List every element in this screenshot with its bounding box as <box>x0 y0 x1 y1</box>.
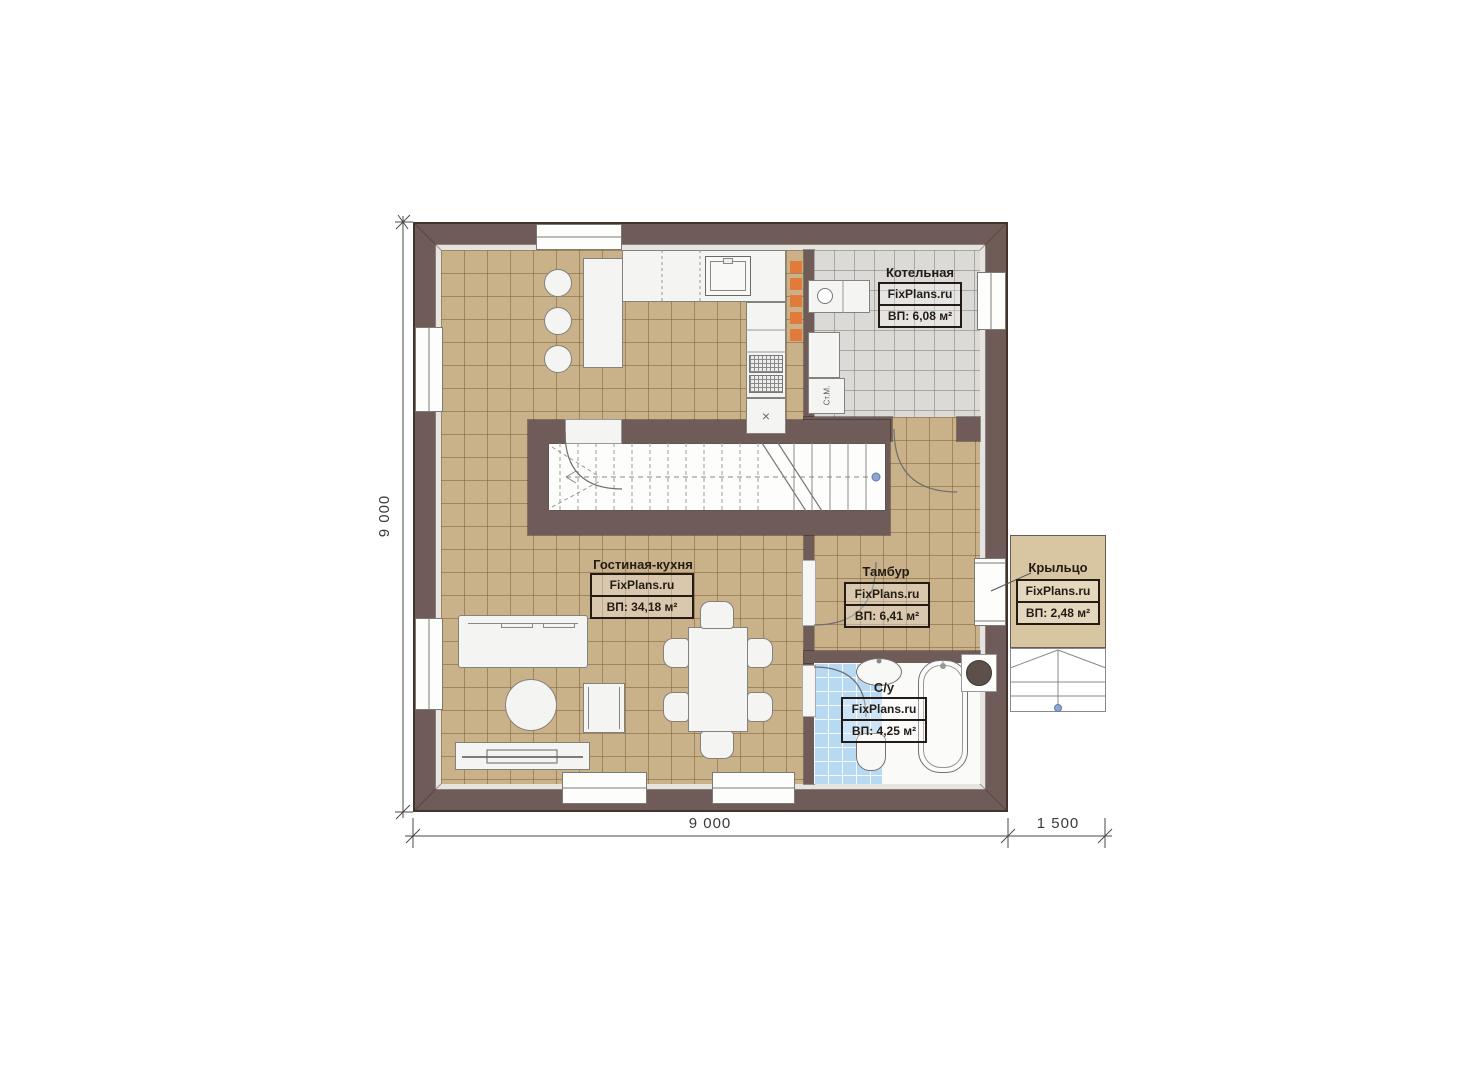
area-living: ВП: 34,18 м² <box>592 595 692 617</box>
washing-machine-label: Ст.М. <box>823 377 832 415</box>
dining-chair-right-2 <box>747 692 773 722</box>
bar-stool-1 <box>544 269 572 297</box>
dining-chair-left-1 <box>663 638 689 668</box>
dimension-bottom-width: 9 000 <box>620 815 800 832</box>
radiator-segment-1 <box>790 261 802 273</box>
boiler-cabinet <box>808 332 840 378</box>
area-boiler: ВП: 6,08 м² <box>880 304 960 326</box>
room-name-porch: Крыльцо <box>1016 560 1100 576</box>
brand-porch: FixPlans.ru <box>1018 581 1098 601</box>
brand-boiler: FixPlans.ru <box>880 284 960 304</box>
radiator-segment-5 <box>790 329 802 341</box>
floor-plan-canvas: × Ст.М. <box>0 0 1473 1080</box>
window-bottom-left <box>562 772 647 804</box>
kitchen-faucet <box>723 258 733 264</box>
room-name-boiler: Котельная <box>858 265 982 281</box>
porch-steps <box>1010 648 1106 712</box>
room-name-living: Гостиная-кухня <box>578 557 708 573</box>
armchair <box>583 683 625 733</box>
area-vestibule: ВП: 6,41 м² <box>846 604 928 626</box>
room-label-porch: FixPlans.ru ВП: 2,48 м² <box>1016 579 1100 625</box>
room-label-living: FixPlans.ru ВП: 34,18 м² <box>590 573 694 619</box>
window-left-lower <box>415 618 443 710</box>
bathroom-door-opening <box>802 665 816 717</box>
dining-chair-left-2 <box>663 692 689 722</box>
entry-door <box>974 558 1006 626</box>
window-left-upper <box>415 327 443 412</box>
bar-stool-3 <box>544 345 572 373</box>
boiler-bottom-wall-stub <box>957 417 980 441</box>
stove-burners-top <box>749 355 783 373</box>
area-porch: ВП: 2,48 м² <box>1018 601 1098 623</box>
room-label-vestibule: FixPlans.ru ВП: 6,41 м² <box>844 582 930 628</box>
washing-machine: Ст.М. <box>808 378 845 414</box>
brand-vestibule: FixPlans.ru <box>846 584 928 604</box>
room-label-bathroom: FixPlans.ru ВП: 4,25 м² <box>841 697 927 743</box>
bar-stool-2 <box>544 307 572 335</box>
dining-chair-bottom <box>700 731 734 759</box>
window-top <box>536 224 622 250</box>
armchair-seat <box>588 687 620 729</box>
dining-table <box>688 627 748 732</box>
vestibule-door-opening <box>802 560 816 626</box>
brand-living: FixPlans.ru <box>592 575 692 595</box>
bar-counter <box>583 258 623 368</box>
tv-stand <box>455 742 590 770</box>
radiator-segment-4 <box>790 312 802 324</box>
room-name-vestibule: Тамбур <box>816 564 956 580</box>
bathtub-inner <box>923 665 963 768</box>
dining-chair-right-1 <box>747 638 773 668</box>
dining-chair-top <box>700 601 734 629</box>
sofa-cushion-divider <box>501 623 533 628</box>
kitchen-counter <box>622 250 786 302</box>
coffee-table <box>505 679 557 731</box>
window-bottom-right <box>712 772 795 804</box>
boiler-burner-circle <box>817 288 833 304</box>
brand-bathroom: FixPlans.ru <box>843 699 925 719</box>
room-name-bathroom: С/у <box>844 680 924 696</box>
dimension-left-height: 9 000 <box>376 476 394 556</box>
stove-burners-bottom <box>749 375 783 393</box>
stair-door <box>565 419 622 444</box>
dimension-porch-width: 1 500 <box>1008 815 1108 832</box>
sofa-cushion-divider-2 <box>543 623 575 628</box>
radiator-segment-3 <box>790 295 802 307</box>
room-label-boiler: FixPlans.ru ВП: 6,08 м² <box>878 282 962 328</box>
sofa <box>458 615 588 668</box>
kitchen-sink-basin <box>710 261 746 291</box>
kitchen-hood-box: × <box>746 398 786 434</box>
radiator-segment-2 <box>790 278 802 290</box>
area-bathroom: ВП: 4,25 м² <box>843 719 925 741</box>
water-heater <box>966 660 992 686</box>
stair-well <box>548 443 886 511</box>
